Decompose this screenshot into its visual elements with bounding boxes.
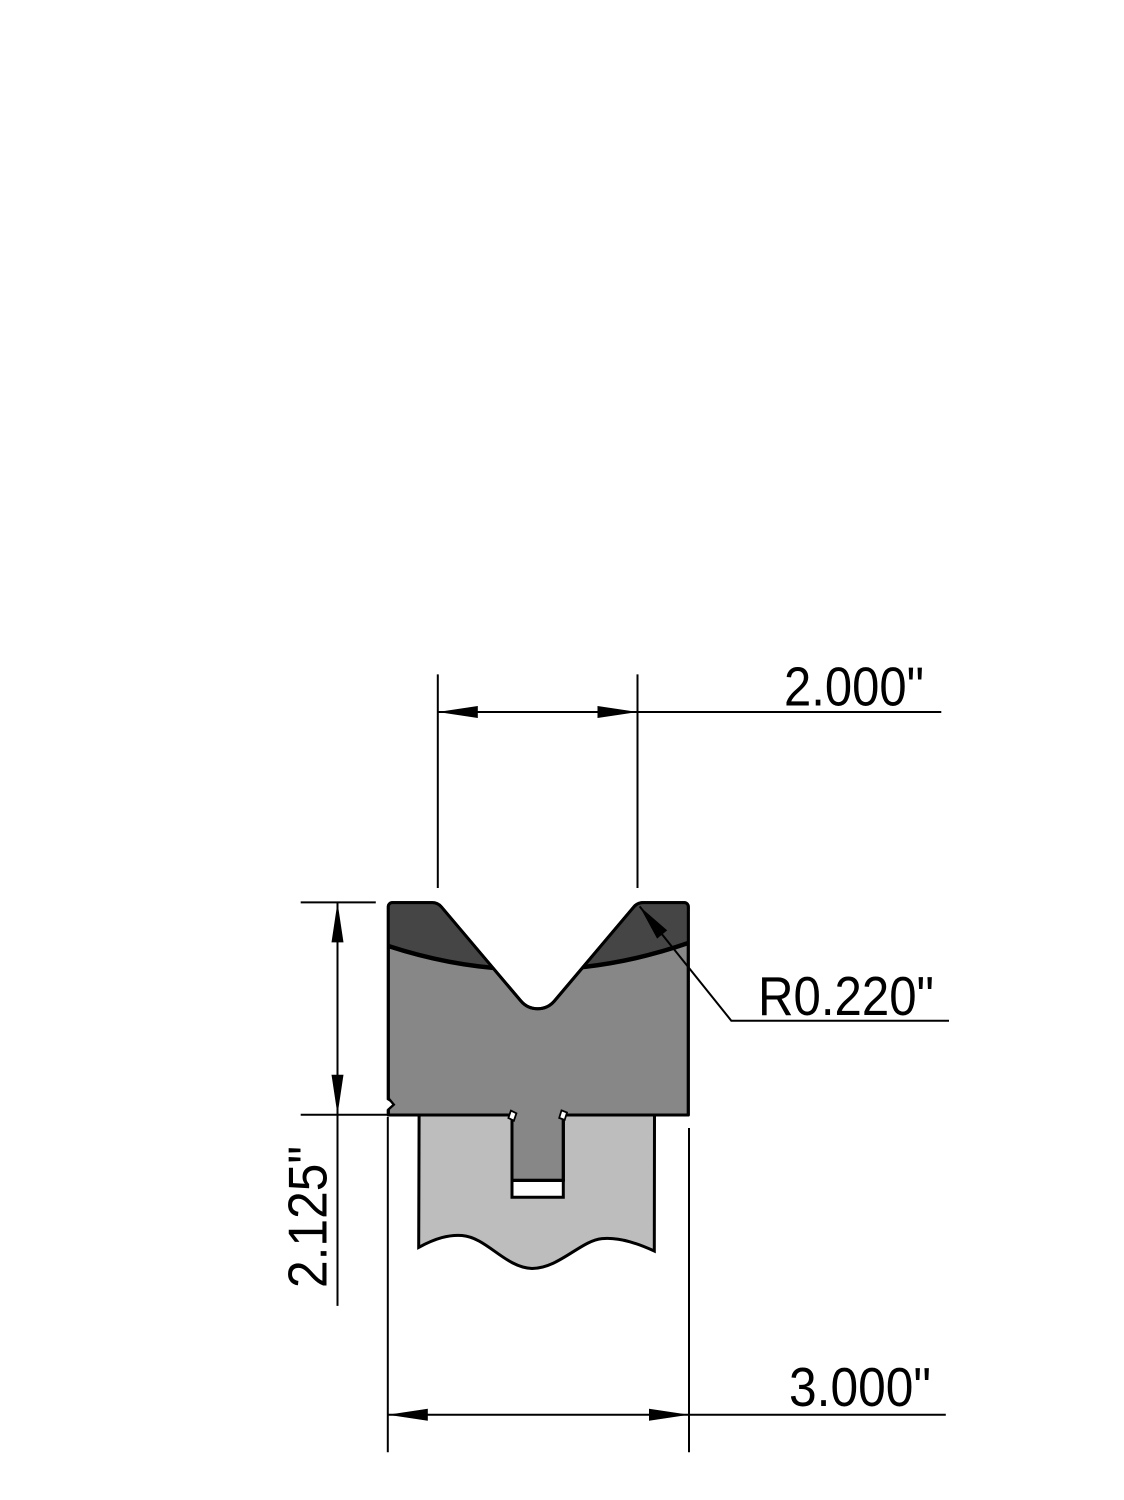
svg-text:2.125": 2.125" (277, 1146, 339, 1288)
svg-text:R0.220": R0.220" (758, 965, 934, 1027)
svg-text:3.000": 3.000" (789, 1356, 931, 1418)
svg-text:2.000": 2.000" (784, 656, 924, 718)
